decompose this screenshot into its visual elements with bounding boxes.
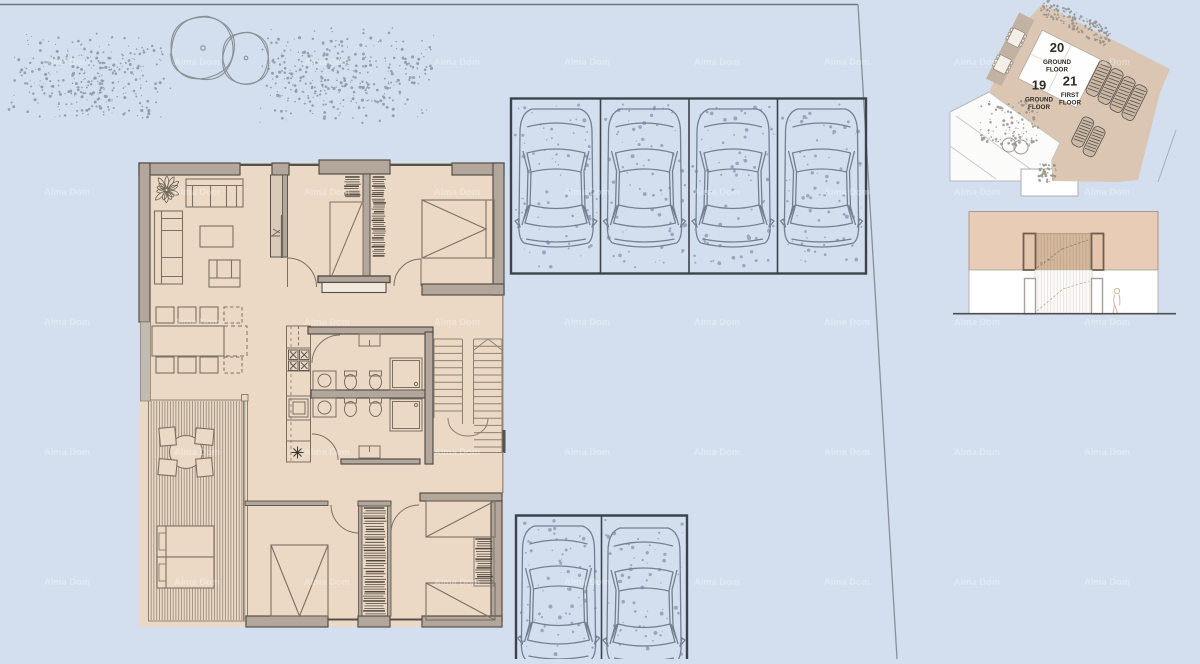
svg-text:Alma Dom: Alma Dom: [564, 57, 610, 67]
svg-text:20: 20: [1050, 40, 1064, 55]
svg-text:Alma Dom: Alma Dom: [44, 317, 90, 327]
svg-text:Alma Dom: Alma Dom: [824, 447, 870, 457]
svg-text:Alma Dom: Alma Dom: [694, 447, 740, 457]
svg-text:Alma Dom: Alma Dom: [304, 317, 350, 327]
svg-text:Alma Dom: Alma Dom: [174, 447, 220, 457]
svg-text:FLOOR: FLOOR: [1059, 100, 1081, 107]
svg-text:Alma Dom: Alma Dom: [304, 57, 350, 67]
svg-text:Alma Dom: Alma Dom: [434, 577, 480, 587]
svg-text:Alma Dom: Alma Dom: [564, 577, 610, 587]
svg-text:FLOOR: FLOOR: [1028, 104, 1050, 111]
svg-text:Alma Dom: Alma Dom: [954, 317, 1000, 327]
svg-text:Alma Dom: Alma Dom: [694, 187, 740, 197]
svg-text:Alma Dom: Alma Dom: [824, 187, 870, 197]
svg-text:Alma Dom: Alma Dom: [564, 317, 610, 327]
svg-text:21: 21: [1063, 74, 1077, 89]
svg-text:Alma Dom: Alma Dom: [564, 187, 610, 197]
svg-text:Alma Dom: Alma Dom: [304, 187, 350, 197]
svg-text:Alma Dom: Alma Dom: [954, 187, 1000, 197]
svg-text:Alma Dom: Alma Dom: [174, 317, 220, 327]
svg-text:GROUND: GROUND: [1043, 59, 1071, 66]
svg-text:Alma Dom: Alma Dom: [434, 57, 480, 67]
svg-text:Alma Dom: Alma Dom: [1084, 57, 1130, 67]
svg-text:Alma Dom: Alma Dom: [174, 57, 220, 67]
svg-text:Alma Dom: Alma Dom: [174, 187, 220, 197]
svg-text:Alma Dom: Alma Dom: [44, 447, 90, 457]
svg-text:Alma Dom: Alma Dom: [434, 447, 480, 457]
svg-text:Alma Dom: Alma Dom: [304, 577, 350, 587]
svg-text:Alma Dom: Alma Dom: [174, 577, 220, 587]
svg-text:Alma Dom: Alma Dom: [694, 577, 740, 587]
svg-text:Alma Dom: Alma Dom: [1084, 577, 1130, 587]
svg-text:FIRST: FIRST: [1061, 92, 1079, 99]
svg-text:Alma Dom: Alma Dom: [304, 447, 350, 457]
svg-text:19: 19: [1032, 78, 1046, 93]
svg-text:Alma Dom: Alma Dom: [1084, 187, 1130, 197]
svg-text:Alma Dom: Alma Dom: [1084, 317, 1130, 327]
svg-text:Alma Dom: Alma Dom: [954, 57, 1000, 67]
svg-text:Alma Dom: Alma Dom: [694, 57, 740, 67]
svg-text:Alma Dom: Alma Dom: [44, 187, 90, 197]
svg-text:Alma Dom: Alma Dom: [434, 317, 480, 327]
svg-text:Alma Dom: Alma Dom: [954, 447, 1000, 457]
svg-text:Alma Dom: Alma Dom: [824, 317, 870, 327]
svg-text:Alma Dom: Alma Dom: [954, 577, 1000, 587]
svg-text:Alma Dom: Alma Dom: [564, 447, 610, 457]
svg-text:Alma Dom: Alma Dom: [434, 187, 480, 197]
svg-text:Alma Dom: Alma Dom: [824, 57, 870, 67]
svg-text:Alma Dom: Alma Dom: [44, 577, 90, 587]
svg-text:Alma Dom: Alma Dom: [1084, 447, 1130, 457]
svg-text:Alma Dom: Alma Dom: [694, 317, 740, 327]
svg-text:Alma Dom: Alma Dom: [44, 57, 90, 67]
svg-text:Alma Dom: Alma Dom: [824, 577, 870, 587]
svg-text:GROUND: GROUND: [1025, 97, 1053, 104]
svg-text:FLOOR: FLOOR: [1046, 67, 1068, 74]
